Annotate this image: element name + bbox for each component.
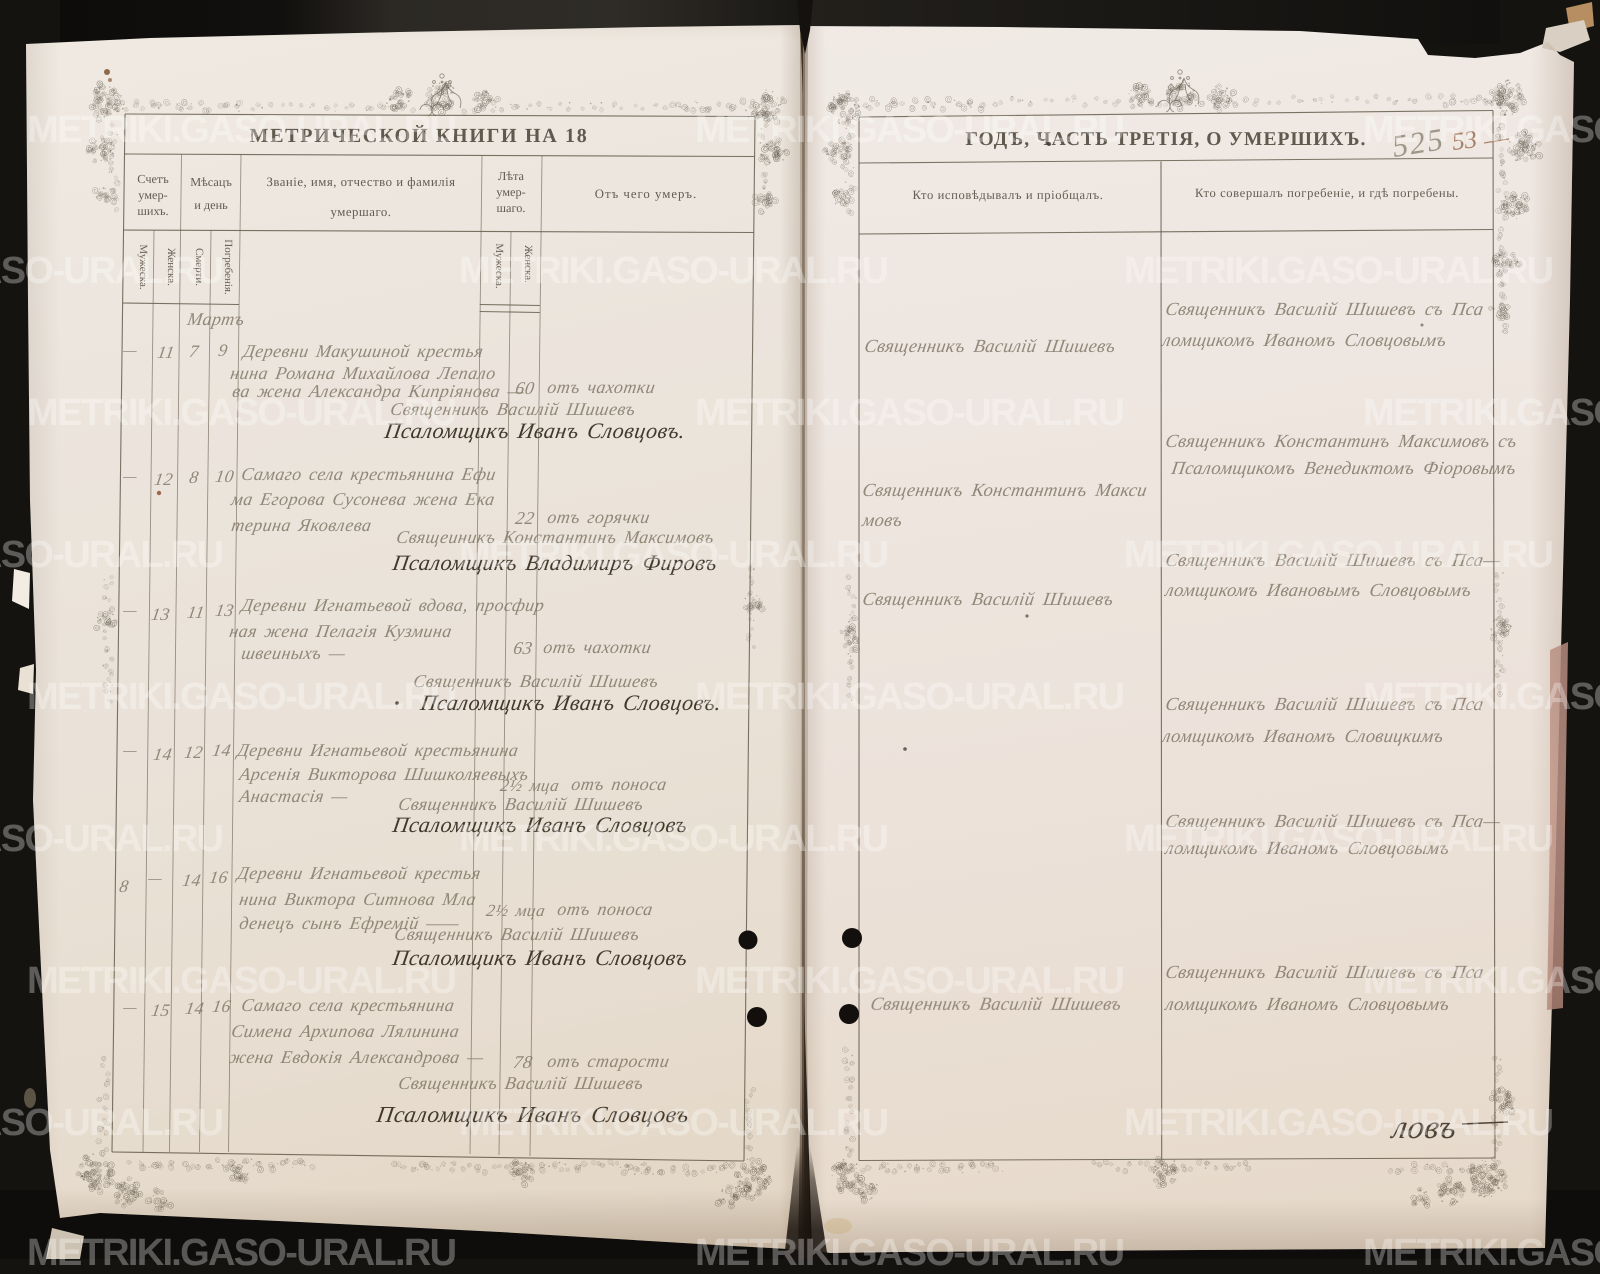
svg-text:Священникъ Василій Шишевъ: Священникъ Василій Шишевъ — [863, 337, 1117, 357]
svg-text:отъ чахотки: отъ чахотки — [542, 637, 653, 657]
svg-text:Кто исповѣдывалъ и пріобщалъ.: Кто исповѣдывалъ и пріобщалъ. — [912, 188, 1103, 202]
svg-text:Отъ чего умеръ.: Отъ чего умеръ. — [595, 187, 698, 201]
svg-text:жена Евдокія Александрова —: жена Евдокія Александрова — — [228, 1047, 486, 1067]
svg-text:швеиныхъ —: швеиныхъ — — [240, 643, 348, 663]
svg-text:Псаломщикъ Иванъ Словцовъ.: Псаломщикъ Иванъ Словцовъ. — [418, 690, 724, 715]
svg-text:Званіе, имя, отчество и фамилі: Званіе, имя, отчество и фамилія — [266, 175, 455, 189]
svg-text:11: 11 — [156, 342, 176, 362]
svg-text:Священникъ Василій Шишевъ: Священникъ Василій Шишевъ — [397, 1073, 645, 1093]
svg-text:Священникъ Василій Шишевъ: Священникъ Василій Шишевъ — [397, 794, 645, 814]
svg-text:Погребенія.: Погребенія. — [222, 239, 234, 295]
svg-text:16: 16 — [208, 867, 230, 887]
svg-text:60: 60 — [514, 378, 536, 398]
svg-text:14: 14 — [211, 740, 233, 760]
svg-text:8: 8 — [188, 467, 200, 487]
svg-text:Анастасія —: Анастасія — — [237, 786, 350, 806]
svg-text:нина Романа Михайлова Лепало: нина Романа Михайлова Лепало — [229, 363, 497, 383]
svg-text:22: 22 — [514, 508, 536, 528]
svg-text:Мѣсацъ: Мѣсацъ — [190, 175, 232, 189]
svg-text:Деревни Игнатьевой крестьянина: Деревни Игнатьевой крестьянина — [234, 740, 520, 760]
svg-text:9: 9 — [217, 340, 229, 360]
svg-text:ломщикомъ Иваномъ Словицкимъ: ломщикомъ Иваномъ Словицкимъ — [1160, 727, 1445, 747]
svg-text:отъ горячки: отъ горячки — [546, 507, 652, 527]
svg-text:11: 11 — [186, 602, 206, 622]
svg-text:Священникъ Константинъ Макси: Священникъ Константинъ Макси — [861, 481, 1148, 501]
svg-text:—: — — [121, 743, 139, 759]
svg-text:умершаго.: умершаго. — [331, 205, 392, 219]
svg-text:15: 15 — [150, 1000, 172, 1020]
svg-text:13: 13 — [214, 600, 236, 620]
svg-text:шихъ.: шихъ. — [137, 204, 168, 218]
svg-text:ломщикомъ Иваномъ Словцовымъ: ломщикомъ Иваномъ Словцовымъ — [1160, 331, 1448, 351]
svg-text:Счетъ: Счетъ — [137, 172, 168, 186]
svg-text:Священникъ Василій Шишевъ: Священникъ Василій Шишевъ — [393, 924, 641, 944]
svg-text:Мартъ: Мартъ — [185, 309, 246, 329]
svg-text:умер-: умер- — [138, 188, 167, 202]
svg-text:ломщикомъ Ивановымъ Словцовымъ: ломщикомъ Ивановымъ Словцовымъ — [1163, 581, 1473, 601]
svg-text:Деревни Макушиной крестья: Деревни Макушиной крестья — [240, 341, 485, 361]
svg-text:Священникъ Василій Шишевъ: Священникъ Василій Шишевъ — [861, 590, 1115, 610]
svg-text:отъ чахотки: отъ чахотки — [546, 377, 657, 397]
svg-text:умер-: умер- — [496, 185, 525, 199]
svg-text:терина Яковлева: терина Яковлева — [230, 515, 373, 535]
svg-text:7: 7 — [188, 341, 201, 361]
svg-text:и день: и день — [194, 198, 228, 212]
svg-text:Деревни Игнатьевой крестья: Деревни Игнатьевой крестья — [234, 863, 482, 883]
svg-text:14: 14 — [181, 870, 203, 890]
svg-text:Симена Архипова Лялинина: Симена Архипова Лялинина — [230, 1021, 461, 1041]
svg-text:12: 12 — [153, 469, 175, 489]
svg-text:ная жена Пелагія Кузмина: ная жена Пелагія Кузмина — [228, 621, 454, 641]
svg-text:—: — — [121, 1000, 139, 1016]
svg-text:мовъ: мовъ — [860, 511, 904, 531]
svg-text:шаго.: шаго. — [497, 201, 526, 215]
svg-text:2½ мца: 2½ мца — [499, 776, 561, 795]
svg-text:Священникъ Василій Шишевъ съ: Священникъ Василій Шишевъ съ Пса — [1164, 300, 1485, 320]
svg-text:Деревни Игнатьевой вдова, прос: Деревни Игнатьевой вдова, просфир — [238, 595, 546, 615]
svg-text:Самаго села крестьянина Ефи: Самаго села крестьянина Ефи — [240, 464, 498, 484]
svg-text:отъ старости: отъ старости — [546, 1051, 671, 1071]
svg-text:Псаломщикомъ Венедиктомъ Фіоро: Псаломщикомъ Венедиктомъ Фіоровымъ — [1169, 459, 1517, 479]
svg-text:13: 13 — [150, 604, 172, 624]
svg-text:отъ поноса: отъ поноса — [570, 774, 668, 794]
svg-text:12: 12 — [183, 742, 205, 762]
svg-text:Лѣта: Лѣта — [498, 169, 525, 183]
svg-text:8: 8 — [118, 876, 130, 896]
svg-text:Арсенія Викторова Шишколяевыхъ: Арсенія Викторова Шишколяевыхъ — [237, 764, 530, 784]
svg-text:отъ поноса: отъ поноса — [556, 899, 654, 919]
svg-text:10: 10 — [214, 466, 236, 486]
svg-text:—: — — [146, 871, 164, 887]
svg-text:Священникъ Константинъ Максимо: Священникъ Константинъ Максимовъ съ — [1164, 432, 1518, 452]
svg-text:78: 78 — [512, 1052, 534, 1072]
svg-text:Кто совершалъ погребеніе, и гд: Кто совершалъ погребеніе, и гдѣ погребен… — [1195, 186, 1459, 200]
svg-text:нина Виктора Ситнова Мла: нина Виктора Ситнова Мла — [238, 889, 478, 909]
svg-text:ма Егорова Сусонева жена Ека: ма Егорова Сусонева жена Ека — [229, 489, 497, 509]
svg-text:2½ мца: 2½ мца — [485, 901, 547, 920]
svg-text:14: 14 — [152, 744, 174, 764]
svg-text:—: — — [121, 343, 139, 359]
svg-text:—: — — [121, 469, 139, 485]
svg-text:—: — — [121, 603, 139, 619]
svg-text:63: 63 — [512, 638, 534, 658]
